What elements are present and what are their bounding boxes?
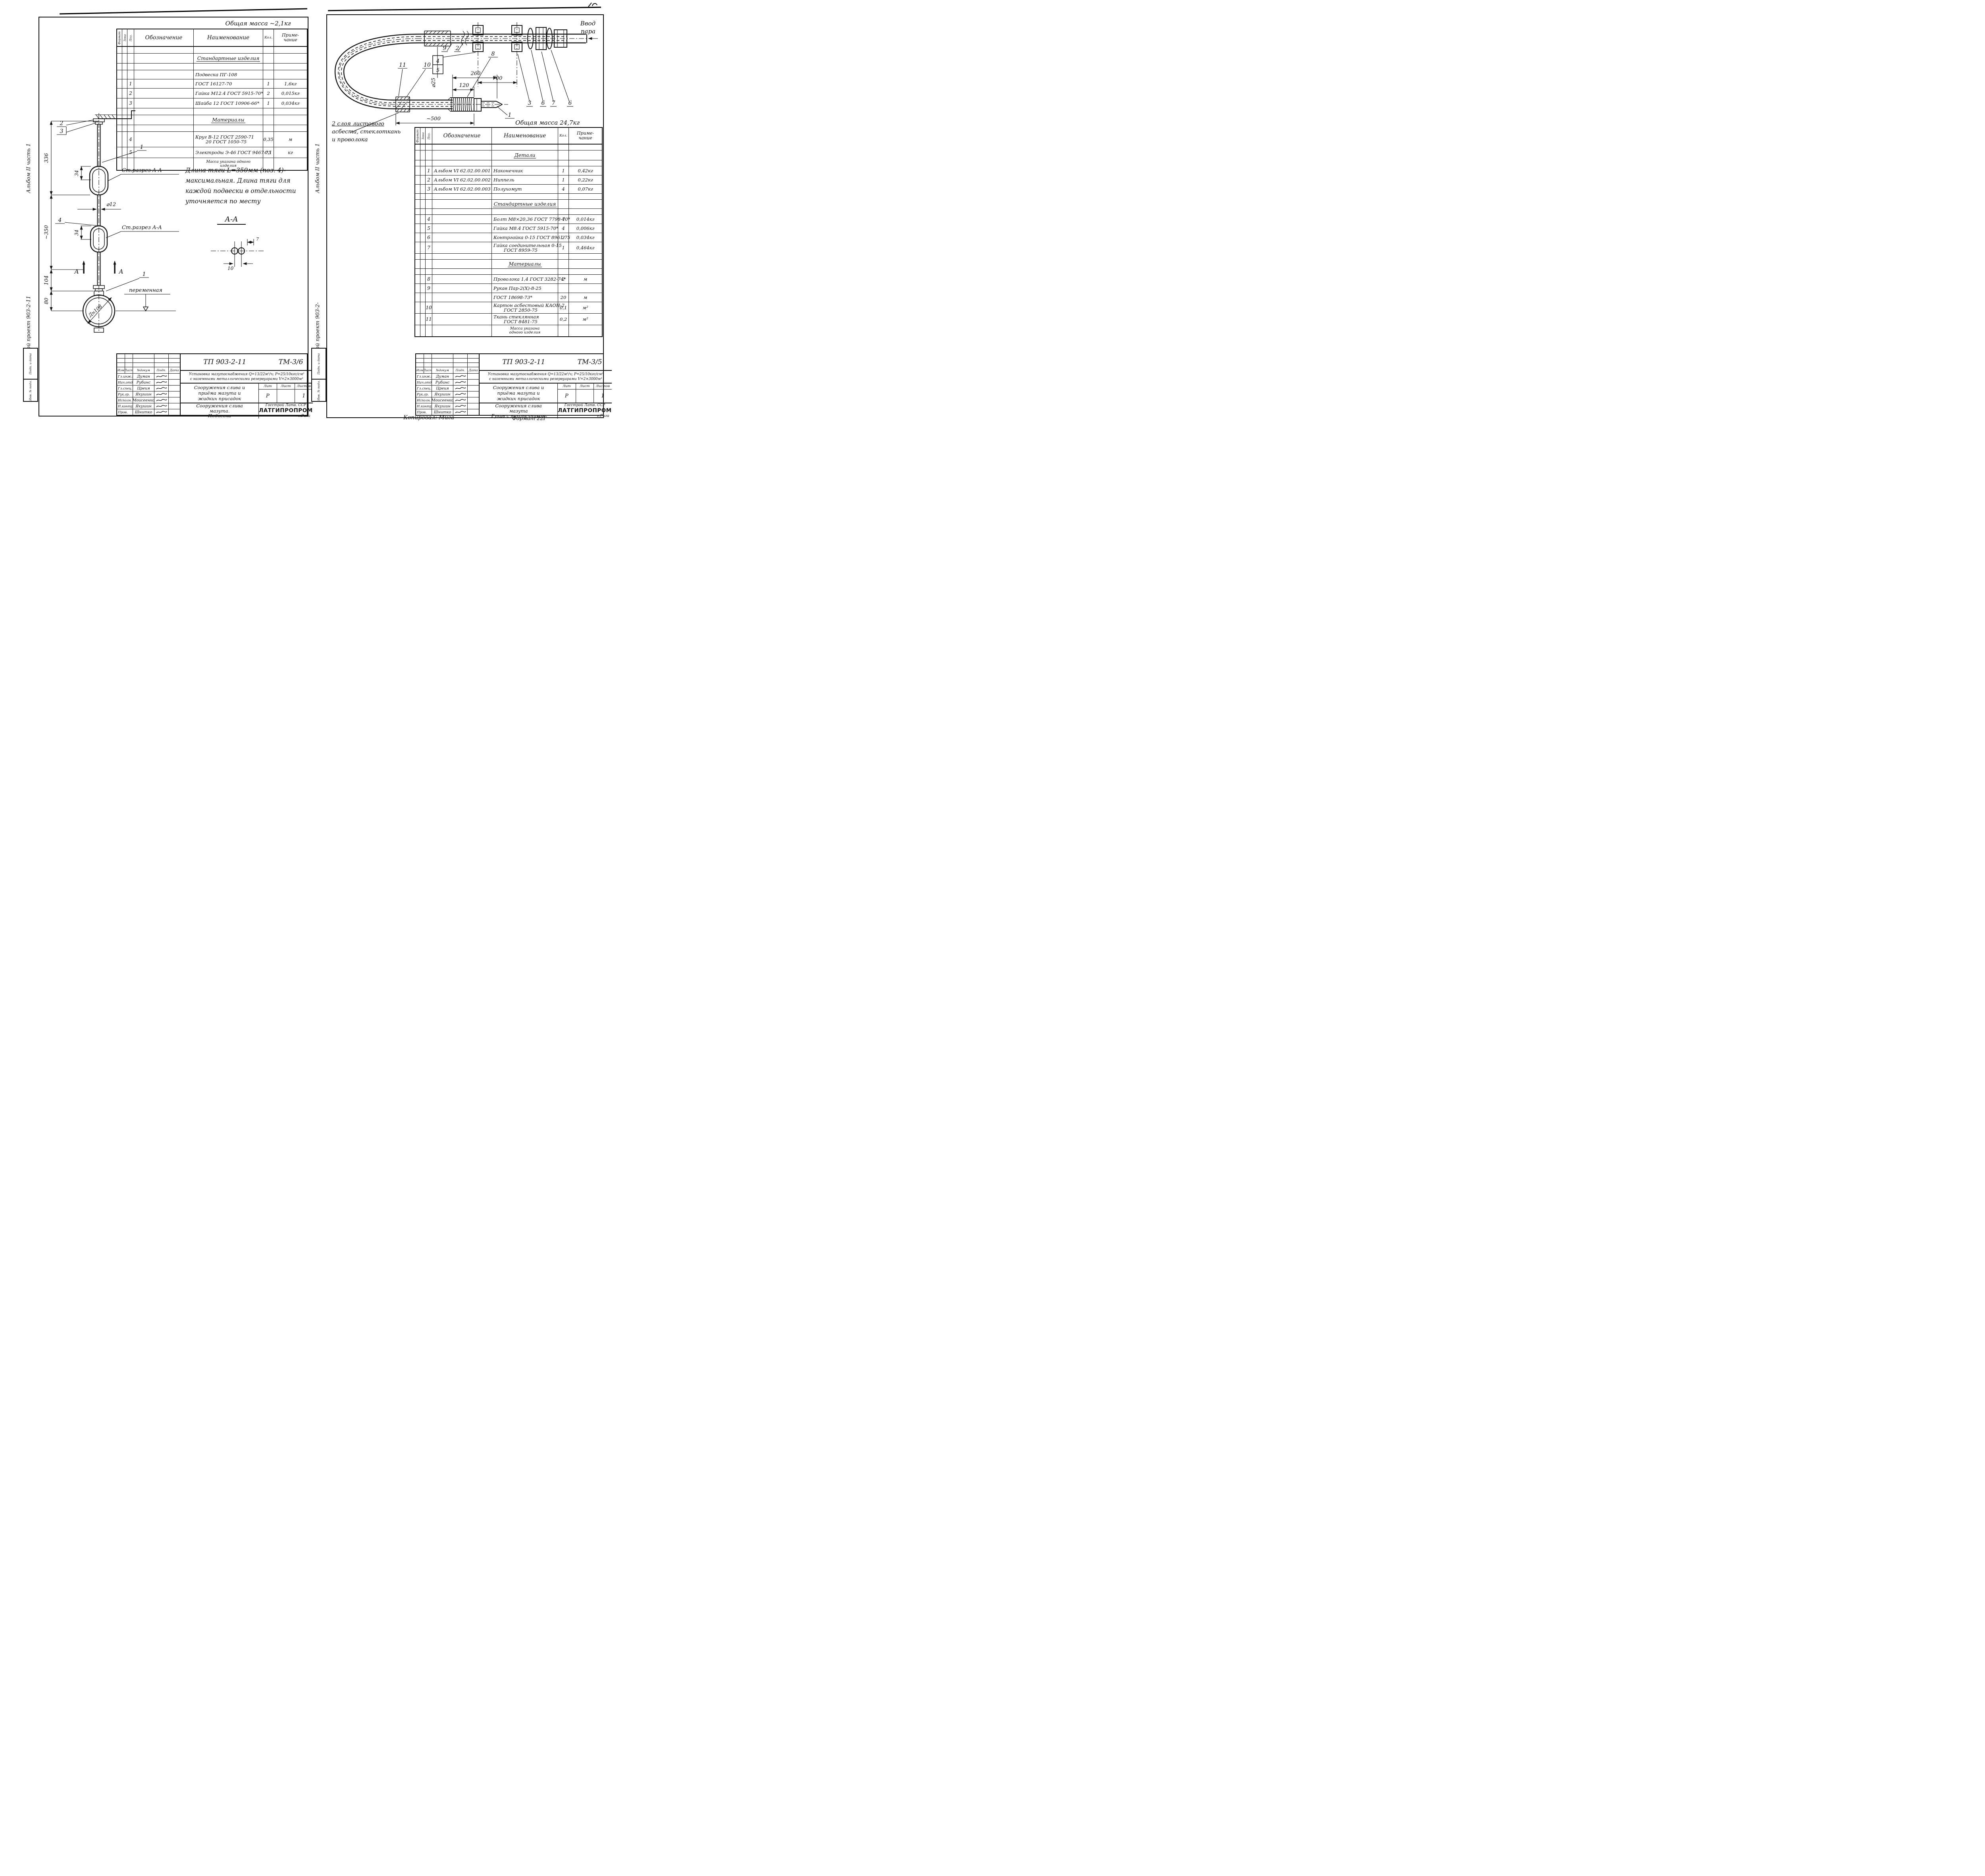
sheet-code: ТМ-3/5: [568, 358, 612, 366]
person-name: Шнитко: [432, 409, 453, 415]
stamp-label: Инв. № подл.: [29, 380, 33, 400]
note-line: максимальная. Длина тяги для: [185, 175, 296, 186]
label-dn108: Дн108: [87, 303, 103, 318]
dim-350: ~350: [44, 225, 50, 239]
spec-section-row: Детали: [415, 150, 602, 160]
label-1: 1: [143, 271, 146, 278]
stamp-label: Подп. и дата: [29, 353, 33, 374]
note-line: уточняется по месту: [185, 196, 296, 206]
label-2: 2: [60, 120, 64, 127]
right-spec-table: ФорматЗонаПоз.ОбозначениеНаименованиеКол…: [414, 127, 603, 337]
cut-mark-a: А: [118, 268, 123, 275]
rev-col-header: Изм: [416, 367, 424, 373]
spec-row: [415, 145, 602, 150]
spec-row: 11Ткань стекляннаяГОСТ 8481-750,2м²: [415, 314, 602, 325]
note-line: 2 слоя листового: [332, 120, 401, 128]
label-3: 3: [60, 128, 64, 135]
dim-336: 336: [44, 153, 50, 163]
sheet-title-line: Подвеска: [181, 413, 258, 418]
note-line: асбеста, стеклоткань: [332, 128, 401, 136]
left-mass-note: Общая масса ~2,1кг: [210, 20, 306, 27]
note-line: и проволока: [332, 136, 401, 144]
person-name: Думан: [432, 374, 453, 379]
signature-mark: [455, 374, 466, 378]
dim-700: 700: [493, 75, 503, 81]
object-title-line: приёма мазута и: [181, 390, 258, 396]
role-label: Пров.: [416, 409, 432, 415]
spec-row: [415, 254, 602, 260]
signature-mark: [156, 380, 168, 384]
lit-value: [277, 389, 295, 403]
role-label: Пров.: [117, 409, 133, 415]
signature-mark: [455, 410, 466, 414]
section-title: Стандартные изделия: [197, 55, 260, 62]
left-note: Длина тяги L=350мм (поз. 4)- максимальна…: [185, 165, 296, 206]
role-label: Исполн.: [117, 397, 133, 403]
section-title: Детали: [514, 152, 536, 158]
person-name: Моисеенко: [432, 397, 453, 403]
spec-section-row: Стандартные изделия: [415, 200, 602, 209]
signature-mark: [455, 380, 466, 384]
col-header: Зона: [421, 132, 425, 140]
personnel-row: Рук.гр.Якушин: [416, 391, 479, 397]
spec-row: 8Проволока 1,4 ГОСТ 3282-74*2м: [415, 275, 602, 284]
revision-grid: ИзмЛист№докумПодп.ДатаГл.инж.прДуманНач.…: [117, 354, 181, 415]
sheet-right: ⌀25 Ввод пара 9: [326, 14, 604, 418]
right-title-block: ИзмЛист№докумПодп.ДатаГл.инж.прДуманНач.…: [415, 353, 604, 416]
spec-row: 1Альбом VI 62.02.00.001Наконечник10,42кг: [415, 166, 602, 175]
label-8: 8: [491, 51, 495, 57]
section-title: Материалы: [508, 261, 542, 267]
rev-col-header: Подп.: [453, 367, 468, 373]
personnel-row: Н.контр.Якушин: [117, 403, 180, 409]
role-label: Н.контр.: [117, 403, 133, 409]
dim-34: 34: [74, 170, 79, 176]
spec-section-row: Стандартные изделия: [117, 54, 307, 64]
role-label: Нач.отд.: [117, 380, 133, 385]
person-name: Якушин: [133, 391, 154, 397]
person-name: Якушин: [133, 403, 154, 409]
spec-row: [415, 194, 602, 200]
spec-row: [415, 160, 602, 166]
personnel-row: Нач.отд.Рубинс: [117, 380, 180, 386]
personnel-row: Гл.инж.прДуман: [416, 374, 479, 380]
spec-row: [415, 269, 602, 275]
margin-album: Альбом II часть 1: [315, 143, 321, 193]
person-name: Думан: [133, 374, 154, 379]
rev-col-header: Изм: [117, 367, 125, 373]
callout-section-aa: Ст.разрез А-А: [122, 225, 162, 231]
role-label: Гл.инж.пр: [416, 374, 432, 379]
callout-section-aa: Ст.разрез А-А: [122, 168, 162, 174]
role-label: Гл.инж.пр: [117, 374, 133, 379]
signature-mark: [156, 374, 168, 378]
col-header-name: Наименование: [504, 133, 546, 139]
org-city: г.Рига: [558, 414, 612, 418]
project-title-line: с наземными металлическими резервуарами …: [181, 377, 313, 382]
right-mass-note: Общая масса 24,7кг: [494, 119, 601, 126]
org-city: г.Рига: [259, 414, 313, 418]
person-name: Цреия: [133, 386, 154, 391]
spec-row: 10Картон асбестовый КАОН-2ГОСТ 2850-750,…: [415, 302, 602, 314]
left-stamp-column: Подп. и дата Инв. № подл.: [23, 348, 38, 402]
format-note: Формат 22Г: [512, 416, 547, 422]
object-title-line: Сооружения слива и: [480, 385, 557, 390]
spec-row: 2Гайка М12.4 ГОСТ 5915-70*20,015кг: [117, 89, 307, 98]
object-title-line: жидких присадок: [181, 396, 258, 401]
signature-mark: [156, 386, 168, 390]
dim-dia25: ⌀25: [431, 78, 437, 87]
col-header: Поз.: [129, 34, 133, 41]
personnel-row: Пров.Шнитко: [117, 409, 180, 415]
lit-header: Лист: [576, 384, 594, 389]
col-header-qty: Кол.: [264, 36, 272, 40]
project-title-line: Установка мазутоснабжения Q=13/22м³/ч; Р…: [181, 372, 313, 377]
org-line: Госстрой Латв. ССР: [558, 403, 612, 407]
dim-dia12: ⌀12: [106, 202, 116, 208]
left-title-block: ИзмЛист№докумПодп.ДатаГл.инж.прДуманНач.…: [116, 353, 308, 416]
spec-row: 7Гайка соединительная 0-15ГОСТ 8959-7510…: [415, 242, 602, 254]
dim-260: 260: [470, 71, 481, 77]
spec-row: 9Рукав Пар-2(Х)-8-25: [415, 284, 602, 293]
section-title: Стандартные изделия: [493, 201, 557, 207]
lit-header: Лит: [558, 384, 576, 389]
spec-row: [117, 64, 307, 70]
signature-mark: [156, 392, 168, 396]
margin-album: Альбом II часть 1: [26, 143, 32, 193]
section-aa-title: А-А: [217, 215, 246, 225]
signature-mark: [455, 404, 466, 408]
project-title-line: с наземными металлическими резервуарами …: [480, 377, 612, 382]
project-title-line: Установка мазутоснабжения Q=13/22м³/ч; Р…: [480, 372, 612, 377]
spec-row: 1ГОСТ 16127-7011,6кг: [117, 79, 307, 89]
col-header-qty: Кол.: [559, 134, 567, 138]
label-4: 4: [436, 58, 439, 64]
person-name: Рубинс: [133, 380, 154, 385]
object-title-line: приёма мазута и: [480, 390, 557, 396]
right-margin-text: Типовой проект 903-2- Альбом II часть 1: [313, 143, 322, 366]
rev-col-header: Лист: [125, 367, 133, 373]
spec-header: ФорматЗонаПоз.ОбозначениеНаименованиеКол…: [415, 128, 602, 145]
lit-value: [576, 389, 594, 403]
spec-row: Масса указанаодного изделия: [415, 325, 602, 336]
person-name: Рубинс: [432, 380, 453, 385]
spec-header: ФорматЗонаПоз.ОбозначениеНаименованиеКол…: [117, 29, 307, 47]
sheet-code: ТМ-3/6: [269, 358, 313, 366]
left-margin-text: Типовой проект 903-2-11 Альбом II часть …: [24, 143, 33, 366]
col-header: Зона: [123, 34, 127, 42]
signature-mark: [156, 398, 168, 402]
spec-section-row: Материалы: [415, 260, 602, 269]
lit-value: Р: [558, 389, 576, 403]
insulation-note: 2 слоя листового асбеста, стеклоткань и …: [332, 120, 401, 144]
revision-grid: ИзмЛист№докумПодп.ДатаГл.инж.прДуманНач.…: [416, 354, 480, 415]
role-label: Гл.спец.: [117, 386, 133, 391]
label-10: 10: [424, 62, 431, 68]
personnel-row: Гл.инж.прДуман: [117, 374, 180, 380]
label-11: 11: [399, 62, 406, 68]
lit-header: Листов: [594, 384, 612, 389]
dim-120: 120: [459, 83, 469, 89]
dim-500: ~500: [426, 116, 441, 122]
person-name: Якушин: [432, 403, 453, 409]
label-5: 5: [436, 67, 439, 73]
org-line: Госстрой Латв. ССР: [259, 403, 313, 407]
personnel-row: Гл.спец.Цреия: [416, 386, 479, 391]
copied-by-note: Копировал: Мига: [403, 415, 454, 421]
personnel-row: Гл.спец.Цреия: [117, 386, 180, 391]
role-label: Гл.спец.: [416, 386, 432, 391]
personnel-row: Н.контр.Якушин: [416, 403, 479, 409]
label-2: 2: [455, 45, 459, 52]
object-title-line: жидких присадок: [480, 396, 557, 401]
personnel-row: Исполн.Моисеенко: [416, 397, 479, 403]
personnel-row: Пров.Шнитко: [416, 409, 479, 415]
suspension-drawing: 336 ~350 104 80 2 3: [39, 107, 186, 335]
stamp-label: Подп. и дата: [317, 353, 321, 374]
personnel-row: Рук.гр.Якушин: [117, 391, 180, 397]
org-name: ЛАТГИПРОПРОМ: [259, 407, 313, 414]
col-header-designation: Обозначение: [145, 35, 183, 41]
person-name: Шнитко: [133, 409, 154, 415]
rev-col-header: Дата: [169, 367, 180, 373]
spec-row: [117, 47, 307, 54]
spec-row: 5Гайка М8.4 ГОСТ 5915-70*40,006кг: [415, 224, 602, 233]
role-label: Нач.отд.: [416, 380, 432, 385]
dim-104: 104: [44, 276, 50, 285]
role-label: Рук.гр.: [416, 391, 432, 397]
person-name: Моисеенко: [133, 397, 154, 403]
col-header: Формат: [118, 31, 121, 44]
scan-edge-artifact: [60, 8, 307, 14]
dim-10: 10: [227, 266, 234, 271]
spec-row: 2Альбом VI 62.02.00.002Ниппель10,22кг: [415, 175, 602, 185]
steam-inlet-label: пара: [581, 28, 595, 35]
rev-col-header: Лист: [424, 367, 432, 373]
stamp-label: Инв. № подл.: [317, 380, 321, 400]
role-label: Рук.гр.: [117, 391, 133, 397]
lit-value: Р: [259, 389, 277, 403]
signature-mark: [455, 398, 466, 402]
spec-row: ГОСТ 18698-73*20м: [415, 293, 602, 302]
spec-row: 6Контргайка 0-15 ГОСТ 8961-7520,034кг: [415, 233, 602, 242]
corner-mark: [587, 1, 603, 8]
col-header-designation: Обозначение: [443, 133, 481, 139]
sheet-title-line: Сооружения слива: [181, 403, 258, 409]
note-line: каждой подвески в отдельности: [185, 186, 296, 196]
col-header: Поз.: [427, 132, 431, 139]
lit-header: Лит: [259, 384, 277, 389]
rev-col-header: №докум: [432, 367, 453, 373]
label-1: 1: [140, 144, 144, 150]
lit-header: Листов: [295, 384, 313, 389]
sheet-title-line: Сооружения слива: [480, 403, 557, 409]
dim-34: 34: [74, 229, 79, 235]
signature-mark: [455, 386, 466, 390]
dim-7: 7: [256, 237, 259, 242]
document-code: ТП 903-2-11: [480, 358, 568, 366]
col-header-name: Наименование: [207, 35, 249, 41]
sheet-left: Общая масса ~2,1кг ФорматЗонаПоз.Обознач…: [39, 17, 308, 416]
label-1: 1: [508, 112, 512, 118]
role-label: Н.контр.: [416, 403, 432, 409]
cut-mark-a: А: [74, 268, 79, 275]
personnel-row: Исполн.Моисеенко: [117, 397, 180, 403]
signature-mark: [156, 404, 168, 408]
lit-header: Лист: [277, 384, 295, 389]
section-title: Материалы: [211, 117, 245, 123]
spec-row: [415, 209, 602, 215]
right-stamp-column: Подп. и дата Инв. № подл.: [311, 348, 326, 402]
col-header: Формат: [416, 129, 420, 142]
signature-mark: [156, 410, 168, 414]
spec-row: Подвеска ПГ-108: [117, 70, 307, 79]
spec-row: 4Болт М8×20,36 ГОСТ 7798-70*40,014кг: [415, 215, 602, 224]
role-label: Исполн.: [416, 397, 432, 403]
lit-value: 1: [295, 389, 313, 403]
scanned-drawing-page: Типовой проект 903-2-11 Альбом II часть …: [0, 0, 622, 422]
personnel-row: Нач.отд.Рубинс: [416, 380, 479, 386]
label-4: 4: [58, 217, 62, 224]
label-variable: переменная: [129, 287, 162, 293]
object-title-line: Сооружения слива и: [181, 385, 258, 390]
dim-80: 80: [44, 298, 50, 305]
person-name: Якушин: [432, 391, 453, 397]
note-line: Длина тяги L=350мм (поз. 4)-: [185, 165, 296, 175]
rev-col-header: Подп.: [154, 367, 169, 373]
person-name: Цреия: [432, 386, 453, 391]
rev-col-header: Дата: [468, 367, 479, 373]
signature-mark: [455, 392, 466, 396]
rev-col-header: №докум: [133, 367, 154, 373]
steam-inlet-label: Ввод: [580, 20, 595, 27]
lit-value: 1: [594, 389, 612, 403]
spec-row: 3Альбом VI 62.02.00.003Полухомут40,07кг: [415, 185, 602, 194]
scan-edge-artifact: [328, 7, 601, 11]
org-name: ЛАТГИПРОПРОМ: [558, 407, 612, 414]
label-9: 9: [443, 45, 447, 52]
document-code: ТП 903-2-11: [181, 358, 269, 366]
section-aa-sketch: 10 7: [206, 232, 270, 276]
